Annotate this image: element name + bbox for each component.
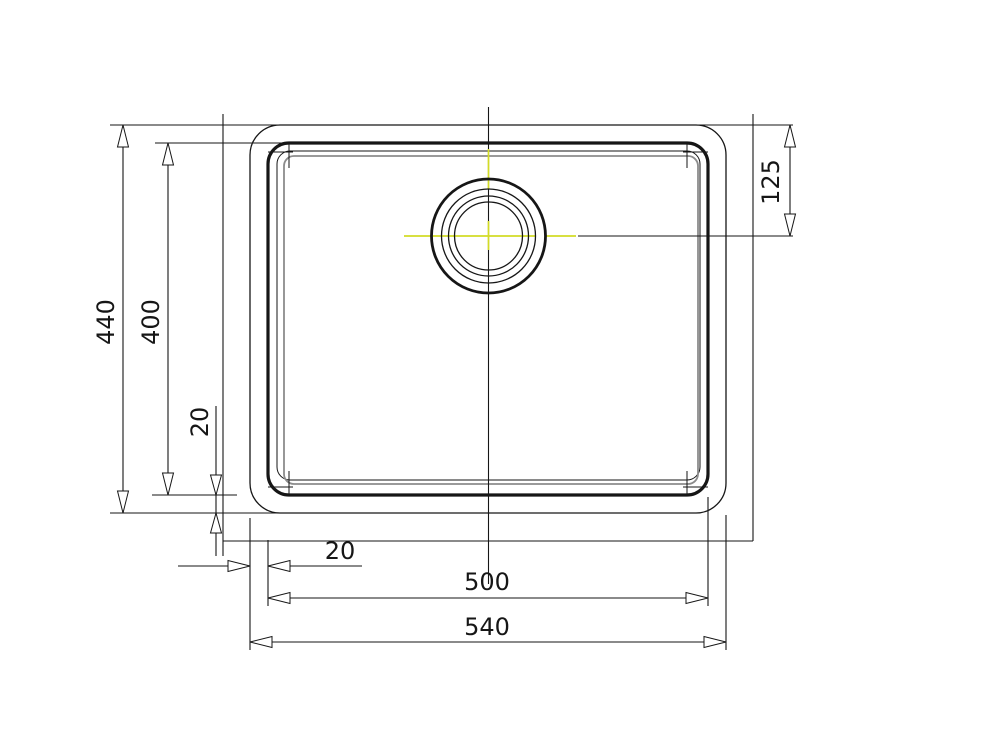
dim-label-overall-width: 540	[464, 613, 510, 641]
dim-125-arrow-top	[785, 125, 796, 147]
dim-overall-height: 440	[92, 125, 129, 513]
dim-drain-from-top: 125	[757, 125, 796, 236]
dim-20-bottom-arrow-right	[228, 561, 250, 572]
bowl-bottom-edge	[284, 156, 698, 484]
dim-540-arrow-right	[704, 637, 726, 648]
dim-rim-offset-left: 20	[186, 406, 222, 556]
dim-overall-width: 540	[250, 613, 726, 648]
sink-drawing-svg: 440 400 20 125 20 500	[0, 0, 997, 740]
dim-400-arrow-bottom	[163, 473, 174, 495]
dim-540-arrow-left	[250, 637, 272, 648]
technical-drawing-canvas: 440 400 20 125 20 500	[0, 0, 997, 740]
dim-label-overall-height: 440	[92, 299, 120, 345]
dim-400-arrow-top	[163, 143, 174, 165]
dim-label-bowl-width: 500	[464, 568, 510, 596]
dim-20-bottom-arrow-left	[268, 561, 290, 572]
dim-20-left-arrow-up	[211, 513, 222, 533]
dim-label-rim-offset-bottom: 20	[325, 537, 356, 565]
dim-440-arrow-top	[118, 125, 129, 147]
dim-label-bowl-height: 400	[137, 299, 165, 345]
dim-bowl-height: 400	[137, 143, 174, 495]
dim-label-drain-from-top: 125	[757, 159, 785, 205]
dim-label-rim-offset-left: 20	[186, 407, 214, 438]
dim-20-left-arrow-down	[211, 475, 222, 495]
dim-500-arrow-left	[268, 593, 290, 604]
dim-bowl-width: 500	[268, 568, 708, 604]
dim-500-arrow-right	[686, 593, 708, 604]
dim-rim-offset-bottom: 20	[178, 537, 362, 572]
dim-125-arrow-bottom	[785, 214, 796, 236]
extension-lines	[110, 125, 793, 650]
dim-440-arrow-bottom	[118, 491, 129, 513]
